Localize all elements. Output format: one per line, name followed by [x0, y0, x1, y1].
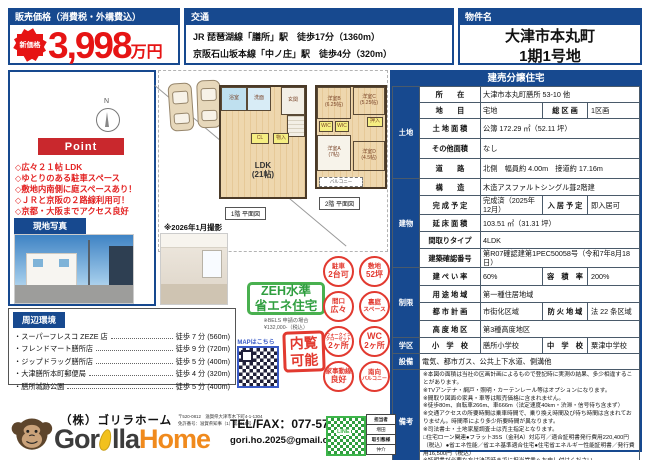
row-value: 60% 容 積 率 200%: [481, 268, 640, 286]
staff-label: 担当者: [367, 415, 395, 424]
plan2-room-b: 洋室B (6.25帖): [317, 87, 351, 119]
row-value: 200%: [588, 268, 637, 285]
floor-plan-2f-caption: 2階 平面図: [319, 197, 360, 210]
stamp-text: 裏庭: [368, 300, 381, 307]
staff-label: 取引態様: [367, 434, 395, 444]
floor-plan-1f: 浴室 洗面 玄関 CL 物入 LDK (21帖): [219, 85, 307, 199]
access-line-1: JR 琵琶湖線「膳所」駅 徒歩17分（1360m）: [193, 29, 445, 47]
table-row: 制限 建 ぺ い 率 60% 容 積 率 200%: [393, 268, 640, 286]
stamp-text: 2ヶ所: [328, 342, 348, 351]
table-row: 備考 ※本図の面積は当社の区画計画によるもので登記時に実測の結果、多少相違するこ…: [393, 370, 640, 460]
new-price-badge: 新価格: [12, 29, 48, 61]
row-value: 市街化区域: [483, 303, 542, 320]
logo-lla: lla: [112, 426, 139, 453]
photo-utility-pole: [88, 240, 90, 285]
stamp-parking: 駐車 2台可: [323, 256, 354, 287]
feature-stamps: 駐車 2台可 敷地 52坪 間口 広々 裏庭 スペース ウォークイン クローゼッ…: [323, 256, 390, 392]
environment-list: ・スーパーフレスコ ZEZE 店 徒歩 7 分 (560m) ・フレンドマート膳…: [9, 329, 235, 392]
logo-gor: Gor: [54, 426, 99, 453]
staff-table: 担当者 増田 取引態様 仲介: [366, 414, 396, 455]
table-row: 延 床 面 積 103.51 ㎡（31.31 坪）: [393, 215, 640, 232]
table-row: 土地 所 在 大津市本丸町膳所 53-10 他: [393, 87, 640, 103]
row-label: 延 床 面 積: [420, 215, 481, 232]
row-label: 容 積 率: [542, 268, 588, 285]
stamp-wc: WC 2ヶ所: [359, 326, 390, 357]
spec-section: 建売分譲住宅 土地 所 在 大津市本丸町膳所 53-10 他 地 目 宅地 総 …: [390, 70, 642, 452]
dotted-leader: [67, 380, 172, 389]
plan2-room-c: 洋室C (5.25帖): [353, 87, 385, 115]
row-value: ※本図の面積は当社の区画計画によるもので登記時に実測の結果、多少相違することがあ…: [420, 370, 640, 460]
price-amount: 3,998: [48, 27, 131, 64]
table-row: 完 成 予 定 完成済（2025年12月） 入 居 予 定 即入居可: [393, 196, 640, 215]
dotted-leader: [96, 342, 173, 351]
row-label: 所 在: [420, 87, 481, 103]
row-label: 完 成 予 定: [420, 196, 481, 215]
gorilla-logo-icon: [8, 412, 54, 458]
row-value: 電気、都市ガス、公共上下水道、側溝他: [420, 354, 640, 370]
environment-item-time: 徒歩 9 分 (720m): [176, 343, 230, 354]
environment-item-name: ・大津膳所本町郵便局: [14, 368, 86, 379]
plan2-room-d: 洋室D (4.5帖): [353, 141, 385, 171]
row-value: 膳所小学校: [483, 338, 542, 353]
price-section: 販売価格（消費税・外構費込） 新価格 3,998 万円: [8, 8, 180, 65]
table-row: その他面積 なし: [393, 139, 640, 159]
row-value: 法 22 条区域: [588, 303, 637, 320]
row-label: 入 居 予 定: [542, 196, 588, 214]
stamp-text: スペース: [363, 307, 386, 313]
dotted-leader: [96, 355, 173, 364]
plan1-closet: CL: [251, 133, 269, 144]
stamp-frontage: 間口 広々: [323, 291, 354, 322]
group-building: 建物: [393, 179, 420, 268]
exterior-photo: [14, 234, 134, 304]
point-item: ◇敷地内南側に庭スペースあり！: [15, 184, 137, 195]
environment-item: ・膳所城跡公園 徒歩 5 分 (400m): [14, 380, 230, 392]
staff-value: 仲介: [367, 444, 395, 454]
point-title: Point: [38, 138, 124, 155]
parking-car-icon: [196, 80, 222, 129]
row-value: 市街化区域 防 火 地 域 法 22 条区域: [481, 303, 640, 321]
logo-home: Home: [139, 426, 210, 453]
table-row: 学区 小 学 校 膳所小学校 中 学 校 粟津中学校: [393, 338, 640, 354]
plan1-stairs: [287, 115, 305, 137]
row-value: 公簿 172.29 ㎡（52.11 坪）: [481, 119, 640, 139]
left-column: N Point ◇広々２１帖 LDK ◇ゆとりのある駐車スペース ◇敷地内南側に…: [8, 70, 156, 306]
stamp-text: 2台可: [328, 271, 348, 280]
environment-item: ・大津膳所本町郵便局 徒歩 4 分 (320m): [14, 367, 230, 379]
plan2-balcony: バルコニー: [319, 177, 363, 187]
row-label: 間取りタイプ: [420, 232, 481, 249]
environment-section: 周辺環境 ・スーパーフレスコ ZEZE 店 徒歩 7 分 (560m) ・フレン…: [8, 308, 236, 385]
row-value: 宅地: [483, 103, 542, 118]
zeh-note-line-1: ※BELS 申請の場合: [241, 318, 331, 325]
table-row: 設備 電気、都市ガス、公共上下水道、側溝他: [393, 354, 640, 370]
row-value: 60%: [483, 268, 542, 285]
company-logo-text: Gor lla Home: [54, 426, 210, 453]
property-name: 大津市本丸町 1期1号地: [460, 25, 640, 68]
floor-plan-1f-caption: 1階 平面図: [225, 207, 266, 220]
point-item: ◇京都・大阪までアクセス良好: [15, 206, 137, 217]
photo-floor: [161, 284, 227, 304]
row-value: 第R07確認建第1PEC50058号（令和7年8月18日）: [481, 249, 640, 268]
line-qr-label: LINE: [336, 429, 351, 435]
stamp-text: 広々: [331, 306, 347, 315]
group-land: 土地: [393, 87, 420, 179]
environment-item-name: ・ジップドラッグ膳所店: [14, 356, 93, 367]
point-item: ◇ゆとりのある駐車スペース: [15, 173, 137, 184]
zeh-badge: ZEH水準 省エネ住宅: [247, 282, 325, 315]
environment-item-time: 徒歩 5 分 (400m): [176, 356, 230, 367]
environment-title: 周辺環境: [13, 312, 65, 328]
stamp-text: 良好: [331, 376, 347, 385]
environment-item: ・ジップドラッグ膳所店 徒歩 5 分 (400m): [14, 355, 230, 367]
real-estate-flyer: 販売価格（消費税・外構費込） 新価格 3,998 万円 交通 JR 琵琶湖線「膳…: [0, 0, 650, 460]
company-footer: （株）ゴリラホーム 〒520-0812 滋賀県大津市木下町4-1-1304 免許…: [8, 412, 396, 458]
group-school: 学区: [393, 338, 420, 354]
stamp-housework-line: 家事動線 良好: [323, 361, 354, 392]
table-row: 土 地 面 積 公簿 172.29 ㎡（52.11 坪）: [393, 119, 640, 139]
point-item: ◇広々２１帖 LDK: [15, 162, 137, 173]
zeh-line-2: 省エネ住宅: [250, 299, 322, 313]
row-value: 大津市本丸町膳所 53-10 他: [481, 87, 640, 103]
row-label: 防 火 地 域: [542, 303, 588, 320]
row-value: 完成済（2025年12月）: [483, 196, 542, 214]
map-qr-code: [237, 346, 279, 388]
photo-house: [26, 253, 78, 288]
parking-car-icon: [167, 82, 194, 132]
property-name-line-2: 1期1号地: [460, 47, 640, 67]
row-label: その他面積: [420, 139, 481, 159]
access-lines: JR 琵琶湖線「膳所」駅 徒歩17分（1360m） 京阪石山坂本線「中ノ庄」駅 …: [186, 25, 452, 68]
access-section: 交通 JR 琵琶湖線「膳所」駅 徒歩17分（1360m） 京阪石山坂本線「中ノ庄…: [184, 8, 454, 65]
dotted-leader: [111, 330, 173, 339]
compass-icon: [96, 108, 120, 132]
group-remarks: 備考: [393, 370, 420, 460]
stamp-backyard: 裏庭 スペース: [359, 291, 390, 322]
zeh-line-1: ZEH水準: [250, 284, 322, 298]
row-label: 中 学 校: [542, 338, 588, 353]
environment-item-time: 徒歩 4 分 (320m): [176, 368, 230, 379]
access-line-2: 京阪石山坂本線「中ノ庄」駅 徒歩4分（320m）: [193, 46, 445, 64]
photo-road: [15, 285, 133, 303]
spec-title: 建売分譲住宅: [392, 72, 640, 86]
spec-table: 土地 所 在 大津市本丸町膳所 53-10 他 地 目 宅地 総 区 画 1区画…: [392, 86, 640, 460]
plan1-room-ldk: LDK (21帖): [235, 155, 291, 185]
price-section-title: 販売価格（消費税・外構費込）: [10, 10, 178, 25]
plan1-room-washroom: 洗面: [247, 87, 271, 111]
group-restriction: 制限: [393, 268, 420, 338]
table-row: 地 目 宅地 総 区 画 1区画: [393, 103, 640, 119]
row-label: 土 地 面 積: [420, 119, 481, 139]
environment-item-name: ・スーパーフレスコ ZEZE 店: [14, 331, 108, 342]
property-name-title: 物件名: [460, 10, 640, 25]
dotted-leader: [89, 367, 173, 376]
access-section-title: 交通: [186, 10, 452, 25]
row-value: 第3種高度地区: [481, 321, 640, 338]
table-row: 都 市 計 画 市街化区域 防 火 地 域 法 22 条区域: [393, 303, 640, 321]
stamp-south-balcony: 南向 バルコニー: [359, 361, 390, 392]
site-photo-title: 現地写真: [14, 218, 86, 234]
plan1-storage: 物入: [273, 133, 289, 144]
table-row: 道 路 北側 幅員約 4.00m 接道約 17.16m: [393, 159, 640, 179]
row-value: 完成済（2025年12月） 入 居 予 定 即入居可: [481, 196, 640, 215]
row-value: 木造アスファルトシングル葺2階建: [481, 179, 640, 196]
point-list: ◇広々２１帖 LDK ◇ゆとりのある駐車スペース ◇敷地内南側に庭スペースあり！…: [15, 162, 137, 217]
row-label: 小 学 校: [420, 338, 481, 354]
staff-value: 増田: [367, 424, 395, 434]
row-label: 構 造: [420, 179, 481, 196]
row-label: 総 区 画: [542, 103, 588, 118]
row-value: 粟津中学校: [588, 338, 637, 353]
environment-item-time: 徒歩 7 分 (560m): [176, 331, 230, 342]
plan2-oshiire: 押入: [367, 117, 383, 127]
row-label: 用 途 地 域: [420, 286, 481, 303]
stamp-text: 2ヶ所: [364, 342, 384, 351]
remarks-text: ※本図の面積は当社の区画計画によるもので登記時に実測の結果、多少相違することがあ…: [422, 370, 637, 460]
row-label: 建 ぺ い 率: [420, 268, 481, 286]
plan1-room-bath: 浴室: [221, 87, 247, 111]
environment-item-time: 徒歩 5 分 (400m): [176, 381, 230, 392]
interior-photo: [160, 233, 228, 305]
environment-item-name: ・膳所城跡公園: [14, 381, 64, 392]
photo-ceiling: [161, 234, 227, 248]
property-name-line-1: 大津市本丸町: [460, 27, 640, 47]
stamp-text: バルコニー: [362, 377, 387, 383]
row-label: 都 市 計 画: [420, 303, 481, 321]
environment-item: ・フレンドマート膳所店 徒歩 9 分 (720m): [14, 342, 230, 354]
row-label: 道 路: [420, 159, 481, 179]
map-qr-label: MAPはこちら: [231, 337, 281, 346]
row-value: 103.51 ㎡（31.31 坪）: [481, 215, 640, 232]
floor-plan-2f: 洋室B (6.25帖) 洋室C (5.25帖) WIC WIC 押入 洋室A (…: [315, 85, 387, 189]
compass-north-label: N: [104, 98, 109, 105]
row-value: 1区画: [588, 103, 637, 118]
photo-neighbor-building: [109, 246, 133, 285]
row-value: 北側 幅員約 4.00m 接道約 17.16m: [481, 159, 640, 179]
stamp-walkin-closet: ウォークイン クローゼット 2ヶ所: [323, 326, 354, 357]
table-row: 建物 構 造 木造アスファルトシングル葺2階建: [393, 179, 640, 196]
photo-shoot-caption: ※2026年1月撮影: [162, 222, 224, 233]
row-label: 地 目: [420, 103, 481, 119]
new-price-badge-label: 新価格: [20, 40, 41, 50]
plan2-wic: WIC: [335, 121, 349, 132]
row-value: 4LDK: [481, 232, 640, 249]
table-row: 用 途 地 域 第一種住居地域: [393, 286, 640, 303]
property-name-section: 物件名 大津市本丸町 1期1号地: [458, 8, 642, 65]
row-label: 高 度 地 区: [420, 321, 481, 338]
environment-item: ・スーパーフレスコ ZEZE 店 徒歩 7 分 (560m): [14, 330, 230, 342]
row-label: 建築確認番号: [420, 249, 481, 268]
photo-window: [202, 250, 222, 278]
price-body: 新価格 3,998 万円: [10, 25, 178, 64]
table-row: 建築確認番号 第R07確認建第1PEC50058号（令和7年8月18日）: [393, 249, 640, 268]
stamp-lot-size: 敷地 52坪: [359, 256, 390, 287]
stamp-text: 52坪: [366, 271, 383, 280]
inspection-available-stamp: 内覧 可能: [282, 330, 325, 372]
plan2-room-a: 洋室A (7帖): [317, 135, 351, 171]
environment-item-name: ・フレンドマート膳所店: [14, 343, 93, 354]
row-value: 宅地 総 区 画 1区画: [481, 103, 640, 119]
group-equipment: 設備: [393, 354, 420, 370]
row-value: なし: [481, 139, 640, 159]
point-item: ◇ＪＲと京阪の２路線利用可！: [15, 195, 137, 206]
table-row: 間取りタイプ 4LDK: [393, 232, 640, 249]
table-row: 高 度 地 区 第3種高度地区: [393, 321, 640, 338]
row-value: 第一種住居地域: [481, 286, 640, 303]
plan2-wic: WIC: [319, 121, 333, 132]
plan1-room-entrance: 玄関: [281, 87, 305, 115]
line-qr-code: [326, 416, 366, 456]
row-value: 即入居可: [588, 196, 637, 214]
price-unit: 万円: [131, 38, 163, 62]
row-value: 膳所小学校 中 学 校 粟津中学校: [481, 338, 640, 354]
